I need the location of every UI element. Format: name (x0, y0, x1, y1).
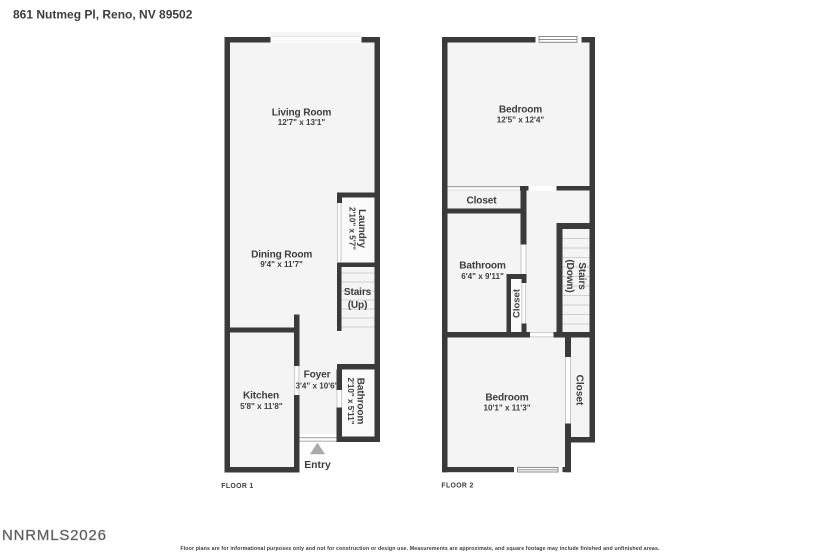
svg-text:9'4" x 11'7": 9'4" x 11'7" (260, 260, 303, 269)
svg-text:2'10" x 5'7": 2'10" x 5'7" (348, 207, 357, 250)
svg-text:12'5" x 12'4": 12'5" x 12'4" (497, 116, 545, 125)
svg-text:Living Room: Living Room (272, 107, 332, 118)
svg-text:10'1" x 11'3": 10'1" x 11'3" (483, 403, 530, 412)
svg-text:Bedroom: Bedroom (499, 105, 542, 116)
svg-text:Stairs: Stairs (344, 287, 372, 298)
svg-text:Bathroom: Bathroom (459, 261, 506, 272)
svg-text:FLOOR 2: FLOOR 2 (441, 483, 473, 490)
svg-text:Closet: Closet (574, 375, 585, 406)
svg-text:Kitchen: Kitchen (243, 391, 279, 402)
svg-text:5'8" x 11'8": 5'8" x 11'8" (240, 402, 283, 411)
svg-text:Bedroom: Bedroom (485, 393, 528, 404)
svg-text:(Down): (Down) (564, 259, 575, 292)
svg-text:Closet: Closet (512, 288, 523, 318)
svg-text:NNRMLS2026: NNRMLS2026 (2, 527, 107, 544)
svg-text:3'4" x 10'6": 3'4" x 10'6" (295, 382, 338, 391)
svg-text:6'4" x 9'11": 6'4" x 9'11" (461, 272, 504, 281)
svg-text:Foyer: Foyer (304, 370, 331, 381)
svg-text:FLOOR 1: FLOOR 1 (221, 483, 253, 490)
svg-text:Stairs: Stairs (576, 262, 587, 290)
svg-text:Floor plans are for informatio: Floor plans are for informational purpos… (180, 546, 660, 552)
svg-text:2'10" x 5'11": 2'10" x 5'11" (346, 377, 355, 424)
svg-text:Entry: Entry (304, 460, 331, 471)
svg-text:12'7" x 13'1": 12'7" x 13'1" (278, 118, 326, 127)
svg-text:(Up): (Up) (348, 300, 368, 311)
svg-text:Closet: Closet (467, 195, 498, 206)
svg-text:861 Nutmeg Pl, Reno, NV 89502: 861 Nutmeg Pl, Reno, NV 89502 (13, 7, 193, 21)
